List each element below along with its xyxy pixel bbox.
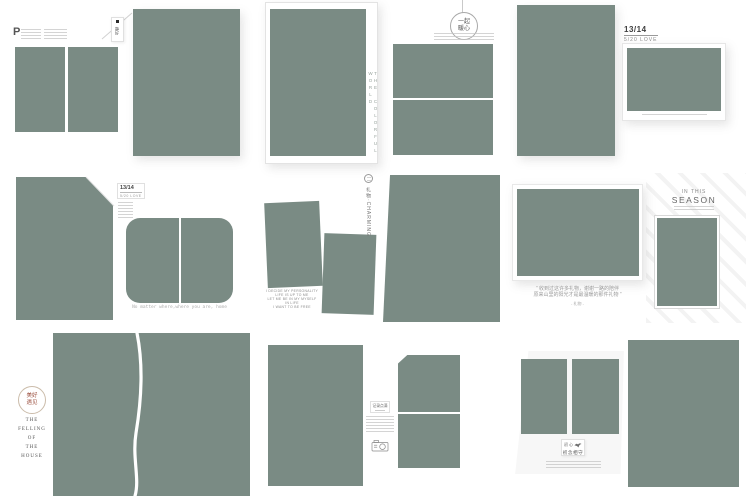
photo-placeholder[interactable] <box>15 47 65 132</box>
tag-hole-icon <box>116 20 119 23</box>
photo-placeholder[interactable] <box>393 100 493 155</box>
photo-placeholder[interactable] <box>398 355 460 412</box>
title-word: HOUSE <box>12 452 52 461</box>
seal-detail <box>367 177 371 181</box>
label-underline <box>375 410 385 411</box>
page-subtitle: 5/20 LOVE <box>120 194 142 198</box>
motto-top-text: 初 心 <box>564 442 573 448</box>
quote-block: “ 收到过这许多礼物，谢谢一路的陪伴 原来山里的阳光才是最温暖的那件礼物 ” <box>505 286 650 298</box>
fine-print <box>434 33 494 42</box>
fine-print <box>546 461 601 468</box>
page-number: 13/14 <box>120 185 142 193</box>
photo-placeholder[interactable] <box>521 359 567 434</box>
photo-placeholder[interactable] <box>133 9 240 156</box>
divider-line <box>624 35 658 36</box>
title-word: FELLING <box>12 425 52 434</box>
corner-cut-line <box>85 176 115 207</box>
fine-print <box>642 114 707 116</box>
drop-cap: P <box>13 26 20 39</box>
season-heading-large: SEASON <box>662 195 726 205</box>
page-number: 13/14 <box>624 25 647 34</box>
photo-placeholder[interactable] <box>268 345 363 486</box>
fine-print <box>44 29 67 40</box>
title-word: THE <box>12 416 52 425</box>
fine-print <box>674 206 714 211</box>
seal-text: 一起 <box>451 19 477 26</box>
title-word: THE <box>12 443 52 452</box>
motto-top-row: 初 心 <box>562 441 584 449</box>
page-label-box: 13/14 5/20 LOVE <box>117 183 145 199</box>
tag-label: 静好 <box>112 24 123 38</box>
photo-placeholder[interactable] <box>126 218 179 303</box>
photo-placeholder[interactable] <box>572 359 619 434</box>
quote-credit: - 礼物 - <box>505 301 650 307</box>
wreath-badge: 美好 遇见 <box>18 386 46 414</box>
side-title: THE COLORFUL WORLD <box>368 71 378 156</box>
badge-text: 遇见 <box>19 400 45 407</box>
caption: No matter where,where you are, home <box>126 305 233 310</box>
photo-placeholder[interactable] <box>393 44 493 98</box>
hang-tag: 静好 <box>111 17 124 42</box>
poem-block: I DECIDE MY PERSONALITY LIFE IS UP TO ME… <box>264 289 320 309</box>
photo-placeholder[interactable] <box>517 189 639 276</box>
badge-text: 美好 <box>19 393 45 400</box>
title-word-stack: THE FELLING OF THE HOUSE <box>12 416 52 461</box>
bird-icon <box>574 441 582 449</box>
seal-text: 暖心 <box>451 26 477 33</box>
fine-print <box>366 416 394 432</box>
side-tag: 礼物·CHARMING <box>365 187 372 247</box>
seal-stamp-icon <box>364 174 373 183</box>
camera-icon <box>371 439 389 452</box>
photo-placeholder[interactable] <box>517 5 615 156</box>
photo-placeholder[interactable] <box>627 48 721 111</box>
photo-placeholder[interactable] <box>628 340 739 487</box>
poem-line: I WANT TO BE FREE <box>264 305 320 309</box>
photo-placeholder[interactable] <box>398 414 460 468</box>
label-text: 记录点滴 <box>371 404 389 409</box>
quote-line: 原来山里的阳光才是最温暖的那件礼物 ” <box>505 292 650 298</box>
photo-placeholder[interactable] <box>264 201 323 288</box>
s-curve-divider <box>120 333 160 496</box>
photo-placeholder[interactable] <box>181 218 233 303</box>
photo-placeholder[interactable] <box>657 218 717 306</box>
template-gallery-canvas: P 静好 THE COLORFUL WORLD 一起 暖心 <box>0 0 750 500</box>
photo-placeholder[interactable] <box>270 9 366 156</box>
label-box: 记录点滴 <box>370 401 390 413</box>
title-word: OF <box>12 434 52 443</box>
photo-placeholder[interactable] <box>68 47 118 132</box>
motto-main-text: 初念相守 <box>562 450 584 456</box>
fine-print <box>118 202 133 218</box>
photo-placeholder[interactable] <box>383 175 500 322</box>
fine-print <box>21 29 41 40</box>
motto-box: 初 心 初念相守 <box>561 439 585 456</box>
